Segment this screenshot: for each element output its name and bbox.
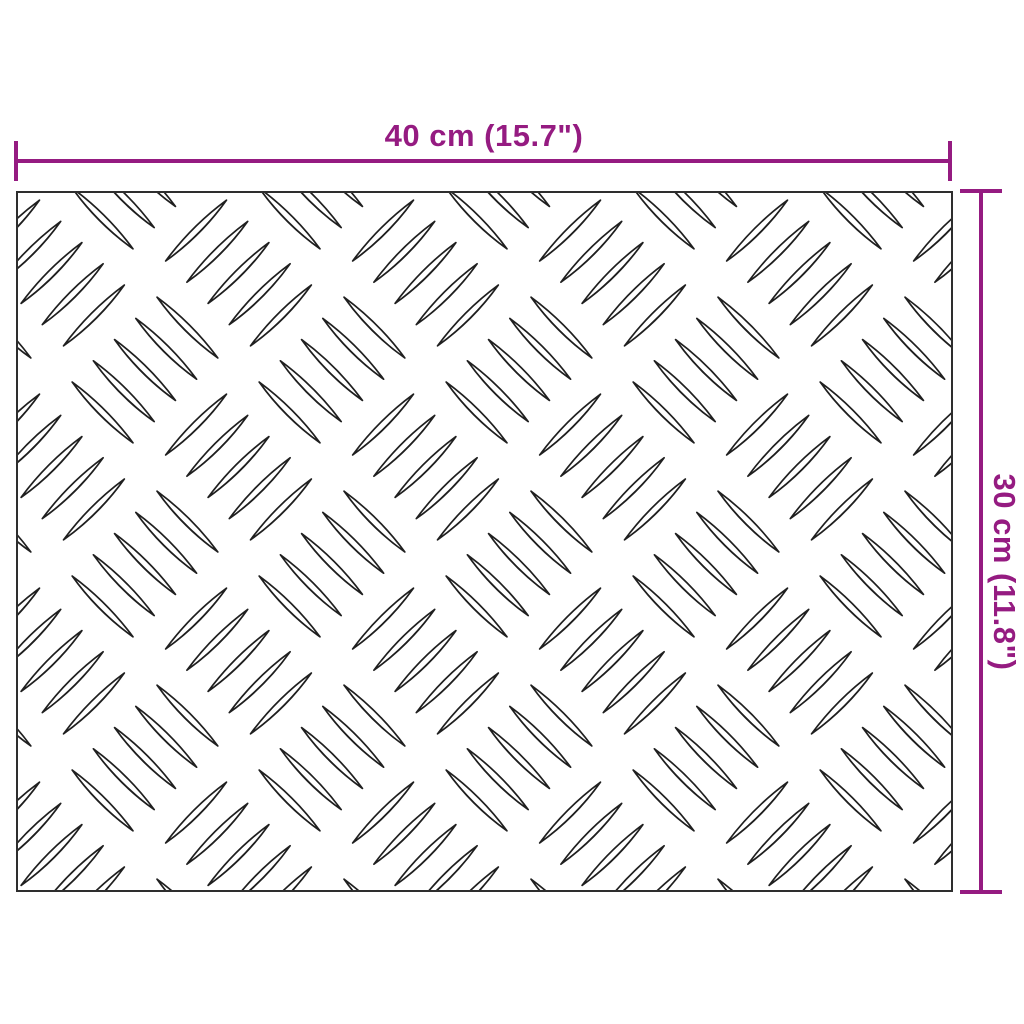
height-dimension-tick-top: [960, 189, 1002, 193]
width-dimension-line: [16, 159, 952, 163]
checker-plate-pattern: [16, 191, 953, 892]
height-dimension-tick-bottom: [960, 890, 1002, 894]
width-dimension-label: 40 cm (15.7"): [16, 118, 952, 154]
height-dimension-label: 30 cm (11.8"): [986, 474, 1022, 671]
height-dimension-line: [979, 191, 983, 892]
product-dimension-diagram: 40 cm (15.7") 30 cm (11.8"): [0, 0, 1024, 1024]
plate-drawing: [16, 191, 953, 892]
